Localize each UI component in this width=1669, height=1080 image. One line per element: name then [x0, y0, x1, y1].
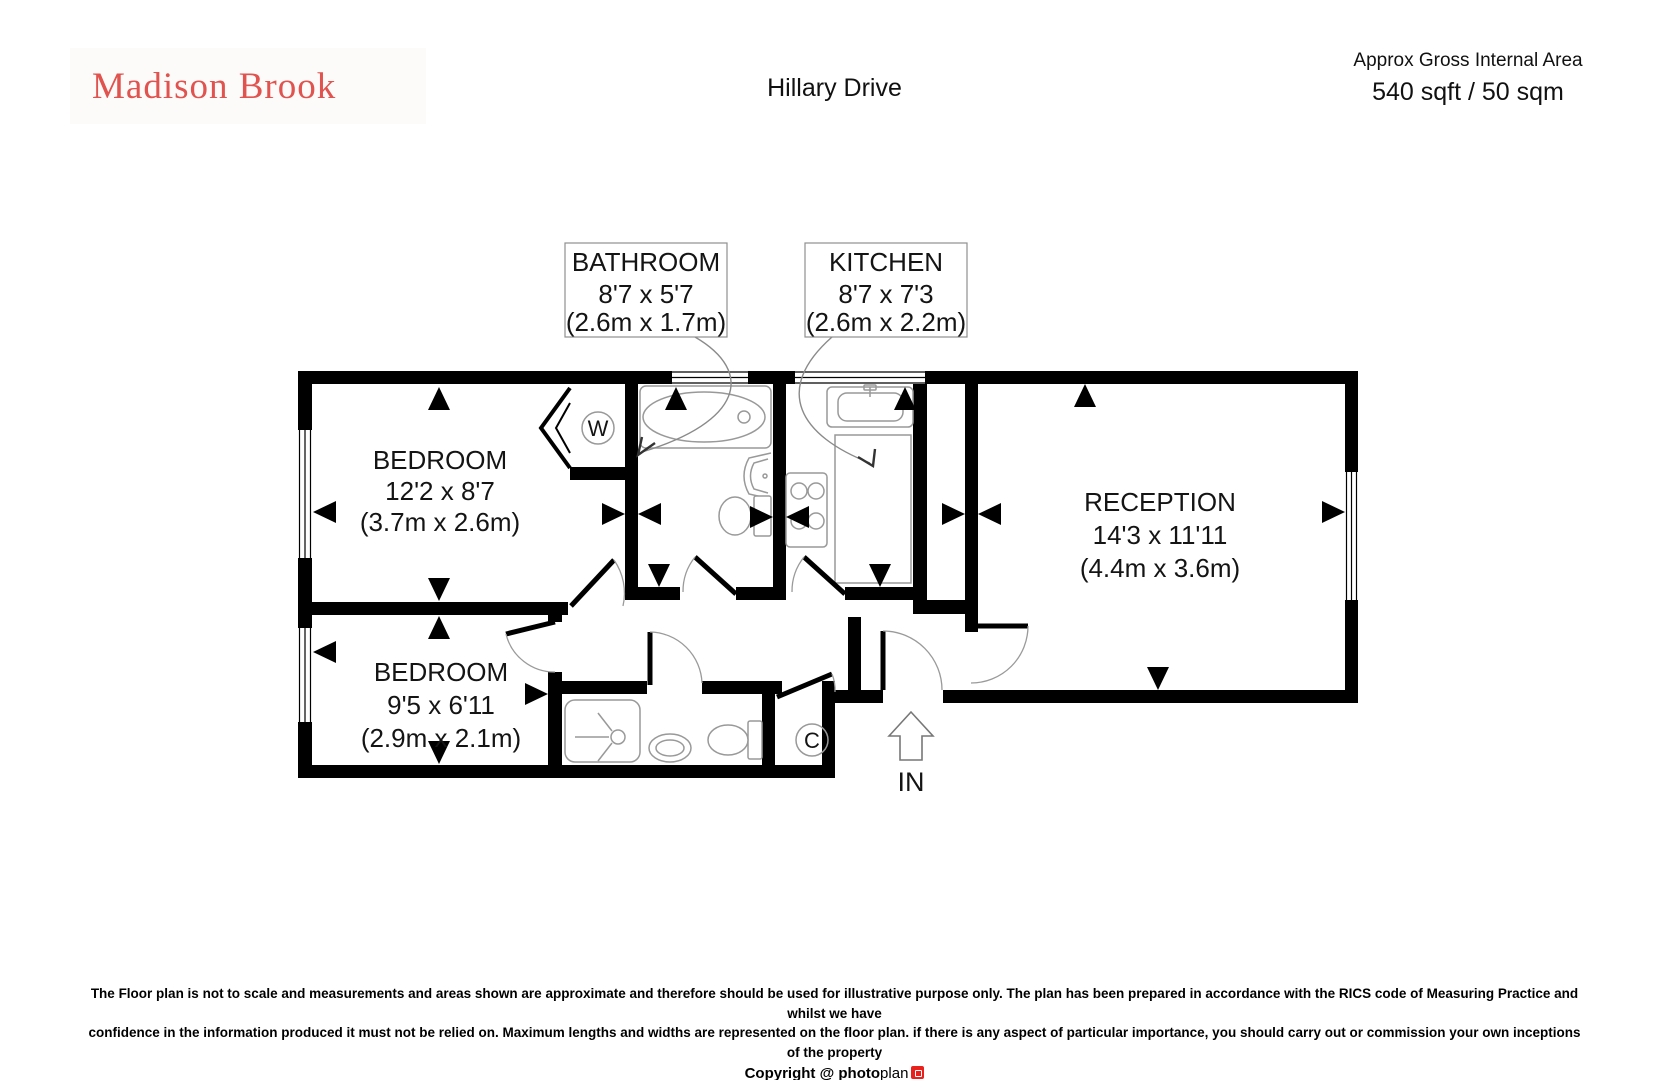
shower-room-door [650, 632, 702, 685]
floor-plan: BATHROOM 8'7 x 5'7 (2.6m x 1.7m) KITCHEN… [0, 0, 1669, 1080]
kitchen-name: KITCHEN [829, 247, 943, 277]
brand-plan: plan [880, 1065, 908, 1080]
wardrobe-bifold-door [541, 388, 570, 468]
reception-label: RECEPTION 14'3 x 11'11 (4.4m x 3.6m) [1080, 487, 1240, 583]
disclaimer-line2: confidence in the information produced i… [0, 1023, 1669, 1062]
copyright-text: Copyright @ [745, 1065, 839, 1080]
bedroom2-dims-metric: (2.9m x 2.1m) [361, 723, 521, 753]
doors [506, 388, 1028, 697]
fixtures [565, 385, 913, 762]
wardrobe-annotation: W [582, 412, 614, 444]
bathroom-dims-imperial: 8'7 x 5'7 [598, 279, 693, 309]
kitchen-dims-metric: (2.6m x 2.2m) [806, 307, 966, 337]
bedroom1-door [571, 560, 624, 606]
reception-dims-metric: (4.4m x 3.6m) [1080, 553, 1240, 583]
bedroom1-dims-imperial: 12'2 x 8'7 [385, 476, 495, 506]
bathroom-label-box: BATHROOM 8'7 x 5'7 (2.6m x 1.7m) [565, 243, 727, 337]
photoplan-logo-icon [911, 1066, 924, 1079]
footer: The Floor plan is not to scale and measu… [0, 984, 1669, 1080]
bedroom1-name: BEDROOM [373, 445, 507, 475]
window-bedroom2 [298, 628, 312, 722]
bedroom2-label: BEDROOM 9'5 x 6'11 (2.9m x 2.1m) [361, 657, 521, 753]
kitchen-dims-imperial: 8'7 x 7'3 [838, 279, 933, 309]
bedroom1-label: BEDROOM 12'2 x 8'7 (3.7m x 2.6m) [360, 445, 520, 537]
bathroom-name: BATHROOM [572, 247, 720, 277]
bedroom2-dims-imperial: 9'5 x 6'11 [387, 690, 495, 720]
wc-basin-icon [649, 734, 691, 762]
bathroom-sink-icon [744, 453, 771, 499]
kitchen-label-box: KITCHEN 8'7 x 7'3 (2.6m x 2.2m) [805, 243, 967, 337]
floorplan-page: Madison Brook Hillary Drive Approx Gross… [0, 0, 1669, 1080]
kitchen-door [792, 557, 845, 594]
window-reception [1345, 472, 1358, 600]
copyright-line: Copyright @ photoplan [0, 1065, 1669, 1080]
entrance-annotation: IN [889, 712, 933, 797]
reception-door [971, 626, 1028, 683]
entrance-arrow-icon [889, 712, 933, 760]
bathroom-dims-metric: (2.6m x 1.7m) [566, 307, 726, 337]
reception-dims-imperial: 14'3 x 11'11 [1093, 520, 1228, 550]
bedroom2-name: BEDROOM [374, 657, 508, 687]
brand-photo: photo [838, 1065, 880, 1080]
disclaimer-line1: The Floor plan is not to scale and measu… [0, 984, 1669, 1023]
shower-tray-icon [565, 700, 640, 762]
bedroom1-dims-metric: (3.7m x 2.6m) [360, 507, 520, 537]
entrance-label: IN [898, 767, 925, 797]
bedroom2-door [506, 622, 555, 672]
window-bathroom [672, 371, 748, 384]
wardrobe-letter: W [588, 416, 609, 441]
window-kitchen [795, 371, 925, 384]
reception-name: RECEPTION [1084, 487, 1236, 517]
bathtub-icon [640, 386, 771, 448]
wc-toilet-icon [708, 721, 762, 759]
window-bedroom1 [298, 430, 312, 558]
bathroom-door [683, 557, 736, 594]
cupboard-letter: C [804, 728, 820, 753]
entrance-door [883, 631, 942, 690]
